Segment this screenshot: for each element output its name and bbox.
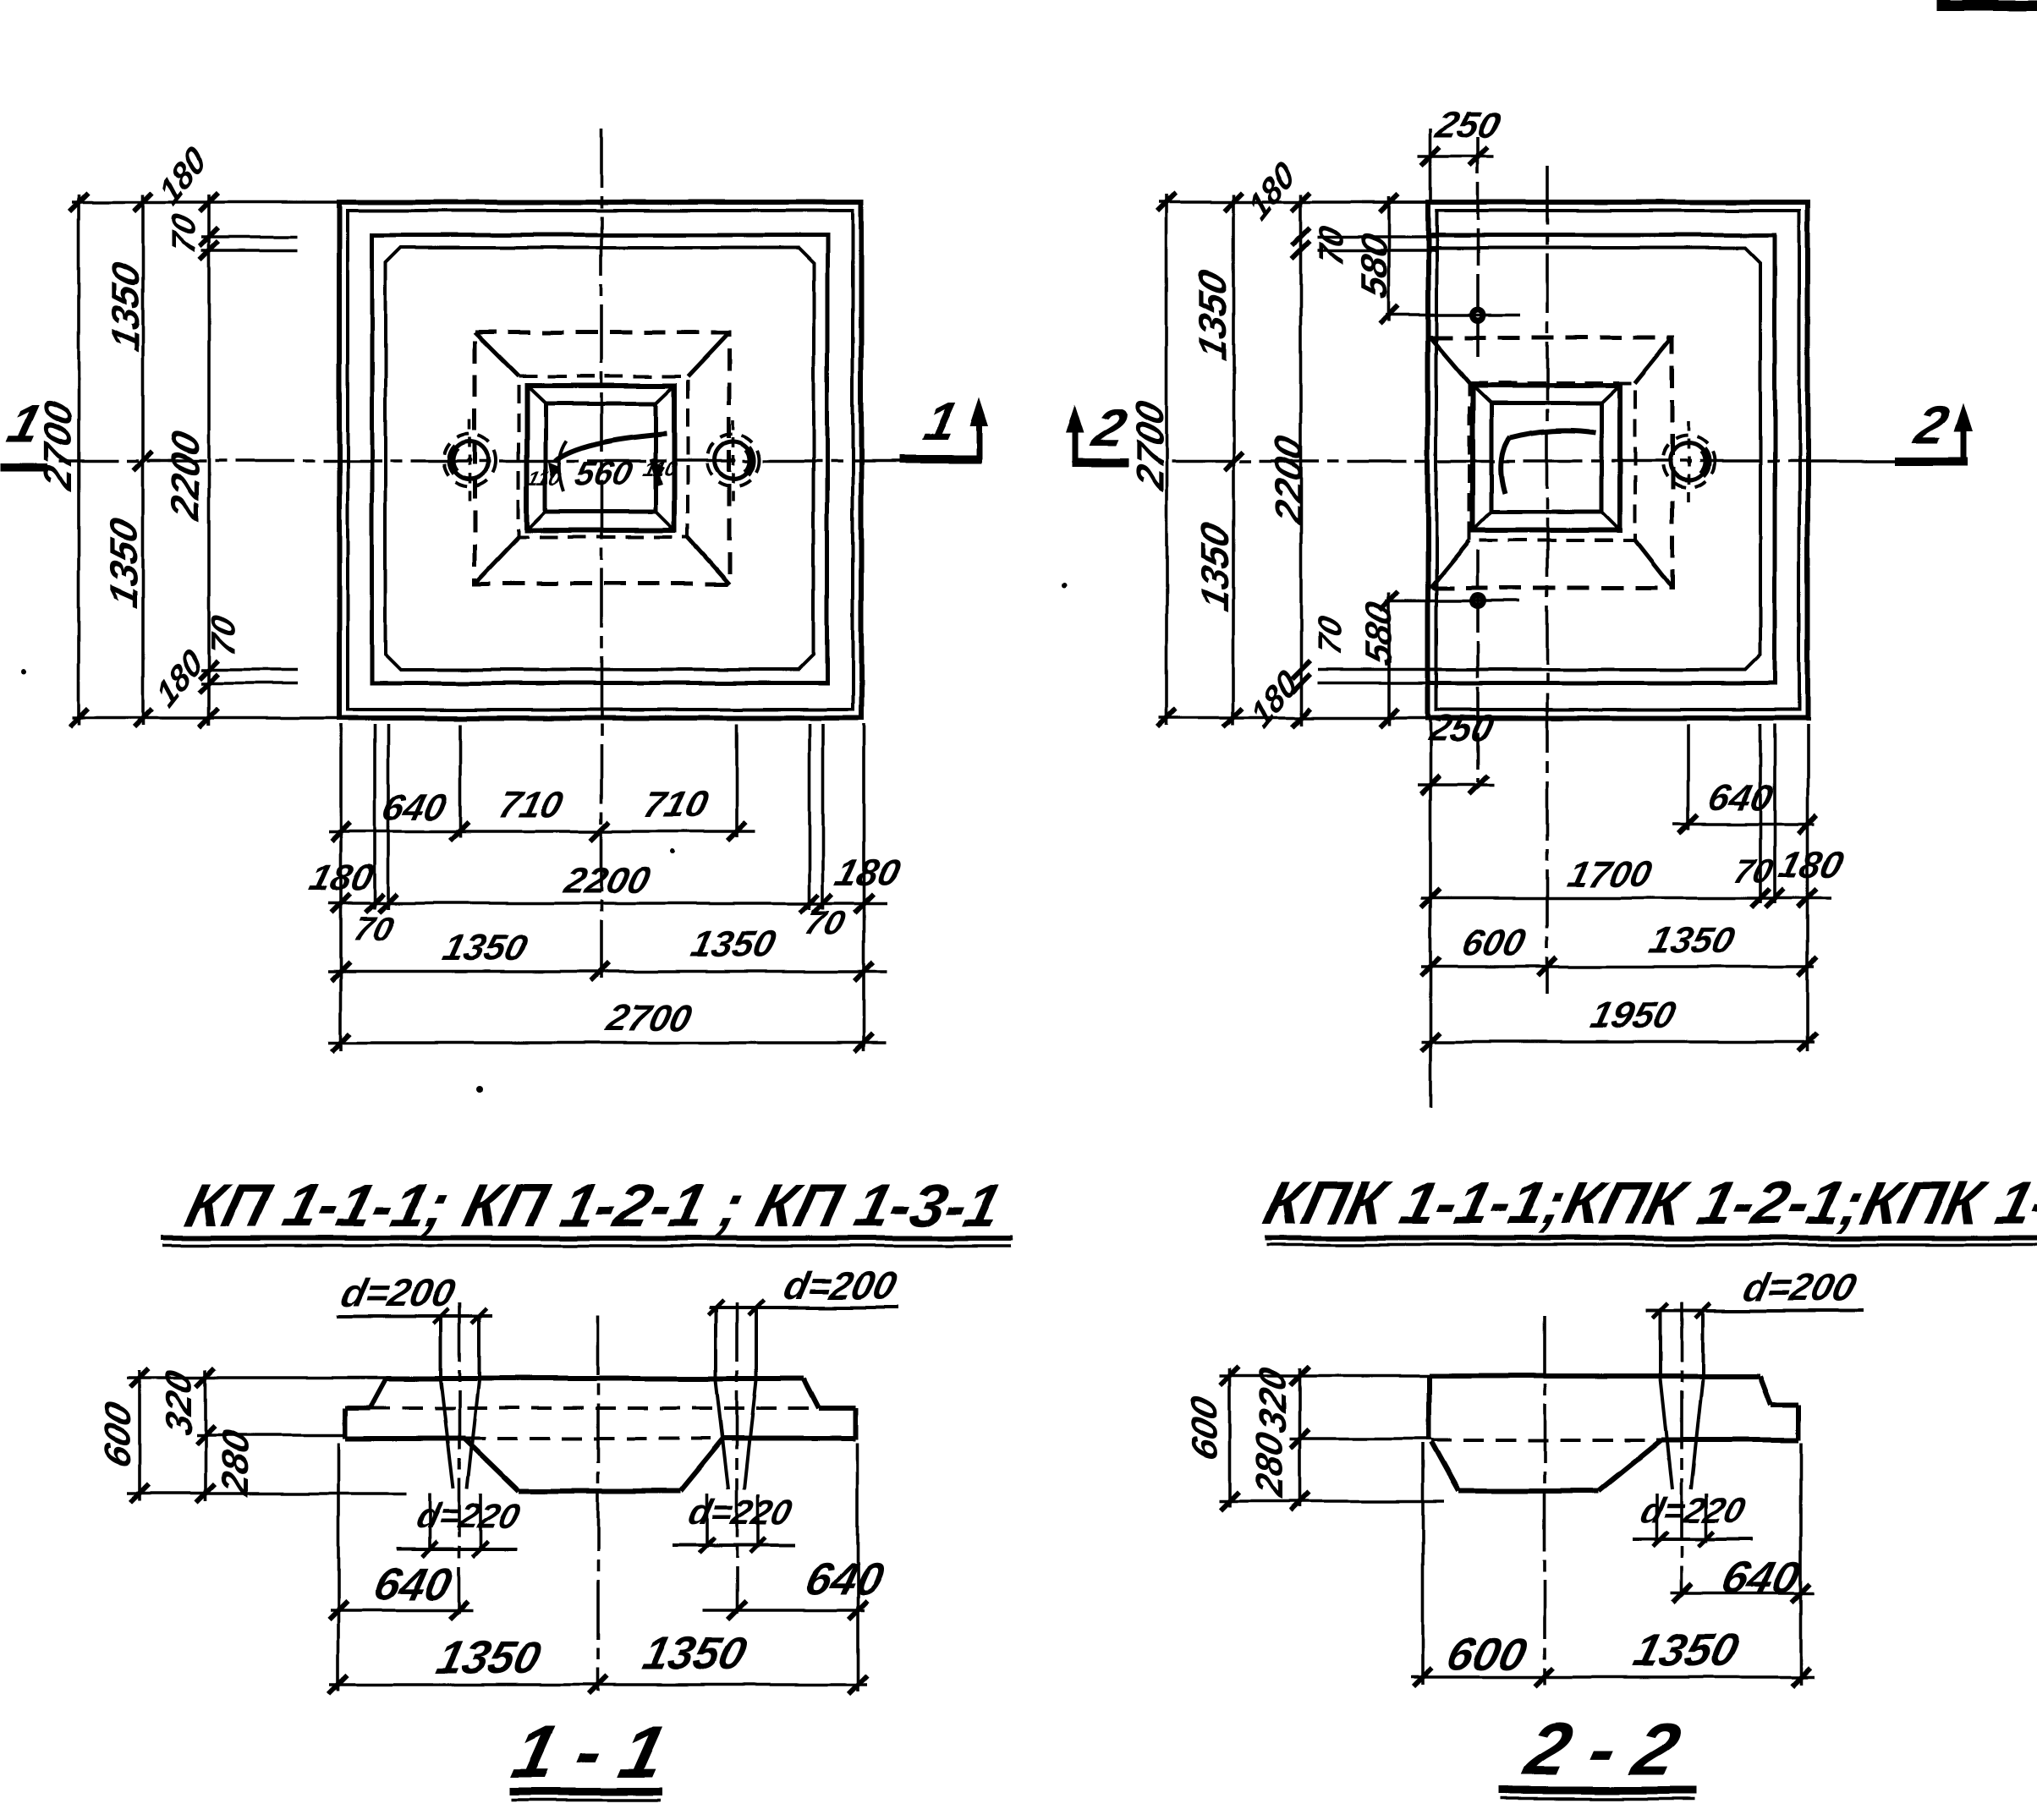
svg-text:1950: 1950 <box>1587 995 1681 1037</box>
svg-text:1350: 1350 <box>438 928 532 969</box>
svg-text:d=200: d=200 <box>338 1270 460 1314</box>
svg-text:2700: 2700 <box>36 396 80 495</box>
svg-text:580: 580 <box>1354 229 1396 302</box>
svg-text:280: 280 <box>1249 1428 1291 1501</box>
svg-text:2200: 2200 <box>163 426 207 525</box>
svg-text:180: 180 <box>1775 845 1848 886</box>
svg-text:110: 110 <box>525 467 564 490</box>
svg-text:180: 180 <box>305 858 378 899</box>
svg-text:640: 640 <box>799 1554 888 1604</box>
svg-text:600: 600 <box>1184 1392 1226 1465</box>
svg-text:320: 320 <box>1253 1363 1294 1436</box>
svg-text:2 - 2: 2 - 2 <box>1516 1707 1688 1790</box>
svg-text:640: 640 <box>1716 1552 1805 1603</box>
svg-text:580: 580 <box>1359 597 1400 670</box>
svg-text:КП 1-1-1; КП 1-2-1 ; КП 1-3-1: КП 1-1-1; КП 1-2-1 ; КП 1-3-1 <box>178 1172 1008 1240</box>
svg-text:d=200: d=200 <box>1739 1265 1862 1309</box>
svg-text:d=200: d=200 <box>779 1264 902 1307</box>
svg-text:1350: 1350 <box>103 257 147 355</box>
svg-text:1700: 1700 <box>1563 854 1657 896</box>
svg-text:250: 250 <box>1431 105 1505 146</box>
svg-text:1350: 1350 <box>431 1632 546 1683</box>
svg-text:1350: 1350 <box>687 924 781 966</box>
svg-text:600: 600 <box>1442 1629 1531 1680</box>
svg-text:560: 560 <box>571 456 637 493</box>
svg-text:КПК 1-1-1;КПК 1-2-1;КПК 1-3-1: КПК 1-1-1;КПК 1-2-1;КПК 1-3-1 <box>1258 1170 2037 1237</box>
svg-text:1350: 1350 <box>1193 518 1237 616</box>
svg-text:d=220: d=220 <box>1638 1490 1749 1530</box>
svg-text:d=220: d=220 <box>685 1492 797 1532</box>
svg-text:280: 280 <box>215 1426 256 1499</box>
svg-text:600: 600 <box>1458 923 1530 964</box>
svg-text:1350: 1350 <box>1190 266 1234 364</box>
svg-text:640: 640 <box>1705 778 1777 820</box>
svg-text:1350: 1350 <box>637 1628 751 1679</box>
svg-text:600: 600 <box>97 1398 139 1471</box>
svg-text:710: 710 <box>495 785 568 826</box>
svg-text:180: 180 <box>832 852 904 894</box>
svg-text:d=220: d=220 <box>413 1496 524 1536</box>
svg-text:1350: 1350 <box>1645 920 1739 962</box>
svg-text:250: 250 <box>1425 708 1498 749</box>
svg-text:2200: 2200 <box>1266 430 1310 529</box>
svg-text:2700: 2700 <box>1128 396 1172 495</box>
svg-text:2200: 2200 <box>560 860 655 902</box>
svg-text:640: 640 <box>378 787 451 829</box>
svg-text:1350: 1350 <box>102 513 145 611</box>
svg-text:2700: 2700 <box>602 998 697 1039</box>
svg-text:1350: 1350 <box>1628 1625 1743 1675</box>
svg-text:1 - 1: 1 - 1 <box>504 1709 674 1793</box>
svg-text:710: 710 <box>640 784 712 825</box>
svg-text:640: 640 <box>368 1559 457 1609</box>
